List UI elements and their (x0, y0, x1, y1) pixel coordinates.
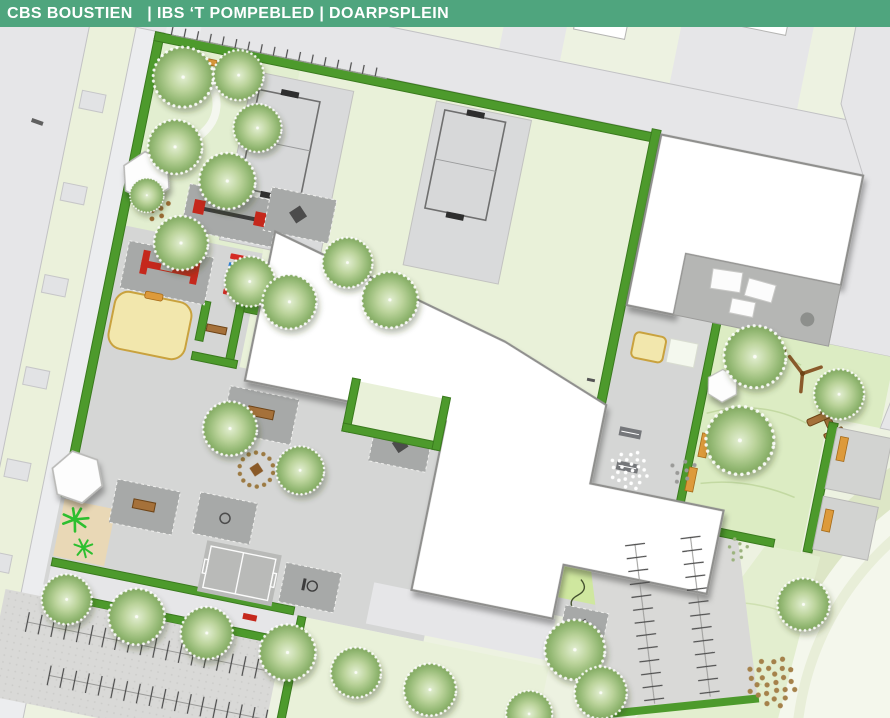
site-plan-page: CBS BOUSTIEN | IBS ‘T POMPEBLED | DOARPS… (0, 0, 890, 718)
page-title: CBS BOUSTIEN | IBS ‘T POMPEBLED | DOARPS… (0, 5, 449, 23)
header-bar: CBS BOUSTIEN | IBS ‘T POMPEBLED | DOARPS… (0, 0, 890, 27)
site-plan-map (0, 0, 890, 718)
sandbox (630, 331, 667, 363)
